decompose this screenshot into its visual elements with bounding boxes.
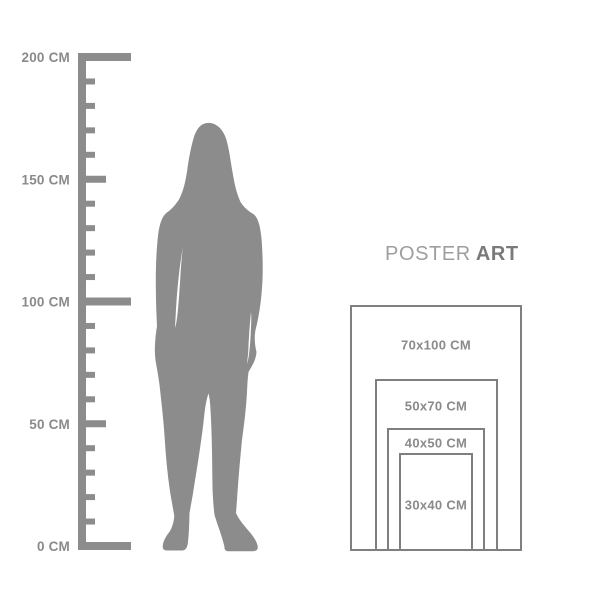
size-label-30x40: 30x40 CM xyxy=(405,497,467,512)
poster-size-guide: 200 CM150 CM100 CM50 CM0 CM POSTERART 70… xyxy=(0,0,600,600)
size-label-70x100: 70x100 CM xyxy=(401,337,471,352)
size-label-50x70: 50x70 CM xyxy=(405,399,467,414)
poster-size-chart: 70x100 CM50x70 CM40x50 CM30x40 CM xyxy=(0,0,600,600)
size-label-40x50: 40x50 CM xyxy=(405,436,467,451)
